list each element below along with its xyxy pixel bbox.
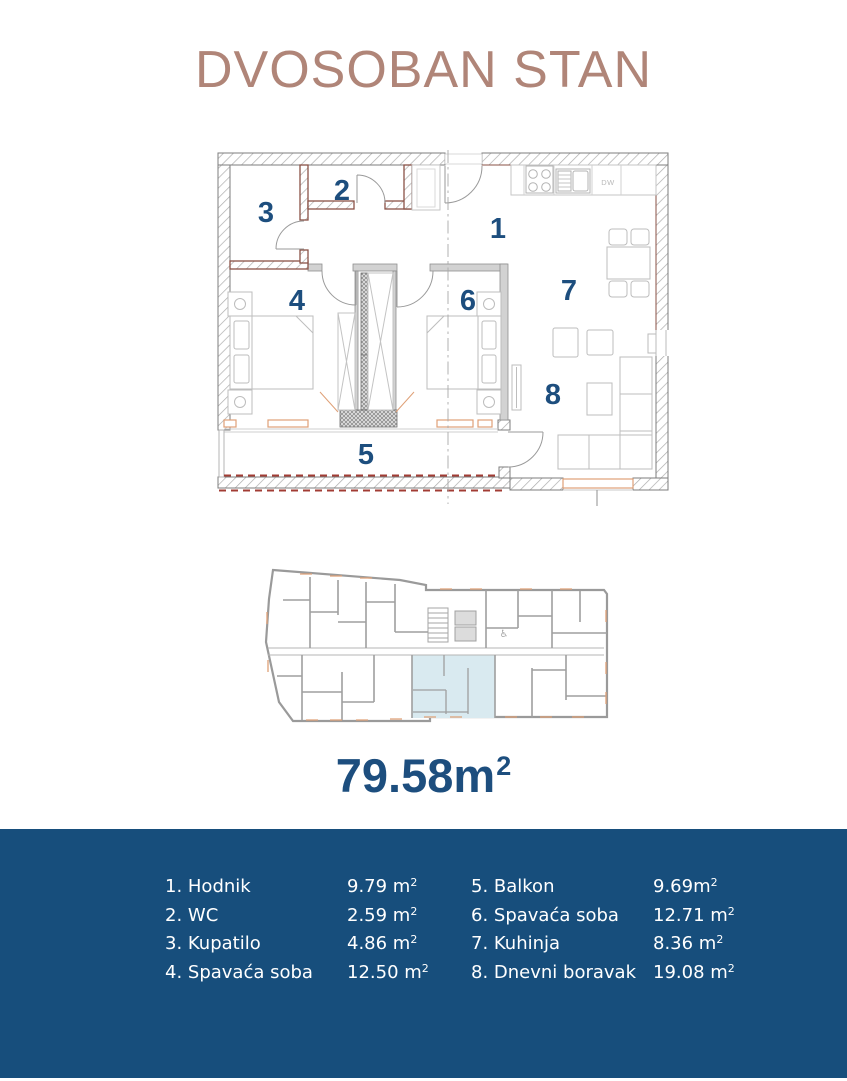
sofa bbox=[558, 435, 652, 469]
legend-room-area: 12.50 m2 bbox=[347, 962, 429, 983]
pillow bbox=[234, 321, 249, 349]
nightstand bbox=[477, 292, 501, 316]
pouf bbox=[553, 328, 578, 357]
room-number-label: 4 bbox=[289, 285, 305, 317]
nightstand bbox=[228, 292, 252, 316]
hall-closet bbox=[412, 165, 440, 210]
dishwasher-label: DW bbox=[601, 178, 615, 187]
room-number-label: 3 bbox=[258, 197, 274, 229]
room-number-label: 7 bbox=[561, 275, 577, 307]
right-wall-window bbox=[648, 330, 669, 356]
legend-room-area: 2.59 m2 bbox=[347, 905, 429, 926]
entrance-opening bbox=[445, 154, 482, 164]
living-room-furniture bbox=[512, 328, 652, 469]
coffee-table bbox=[587, 383, 612, 415]
page-title: DVOSOBAN STAN bbox=[0, 40, 847, 100]
legend-room-area: 9.79 m2 bbox=[347, 876, 429, 897]
room-number-label: 8 bbox=[545, 379, 561, 411]
legend-room-name: 4. Spavaća soba bbox=[165, 962, 347, 983]
highlighted-unit bbox=[412, 655, 495, 718]
total-area-value: 79.58m bbox=[336, 749, 495, 802]
room-number-label: 2 bbox=[334, 175, 350, 207]
wheelchair-icon: ♿ bbox=[500, 629, 509, 640]
legend-room-name: 7. Kuhinja bbox=[471, 933, 653, 954]
total-area-sup: 2 bbox=[496, 751, 511, 781]
nightstand bbox=[477, 390, 501, 414]
pillow bbox=[482, 321, 496, 349]
pillow bbox=[482, 355, 496, 383]
apartment-listing-page: DVOSOBAN STAN bbox=[0, 0, 847, 1081]
legend-room-area: 9.69m2 bbox=[653, 876, 735, 897]
room-number-label: 6 bbox=[460, 285, 476, 317]
dining-set bbox=[607, 229, 650, 297]
legend-room-area: 19.08 m2 bbox=[653, 962, 735, 983]
legend-room-name: 6. Spavaća soba bbox=[471, 905, 653, 926]
main-floor-plan: DW bbox=[215, 148, 675, 506]
stairs-icon bbox=[428, 608, 448, 642]
legend-room-name: 5. Balkon bbox=[471, 876, 653, 897]
sink-icon bbox=[556, 169, 590, 193]
legend-column-left: 1. Hodnik9.79 m22. WC2.59 m23. Kupatilo4… bbox=[165, 872, 429, 987]
legend-room-name: 2. WC bbox=[165, 905, 347, 926]
legend-room-area: 12.71 m2 bbox=[653, 905, 735, 926]
building-overview-plan: ♿ bbox=[260, 555, 615, 735]
pillow bbox=[234, 355, 249, 383]
total-area: 79.58m2 bbox=[0, 748, 847, 803]
legend-room-name: 3. Kupatilo bbox=[165, 933, 347, 954]
legend-room-area: 4.86 m2 bbox=[347, 933, 429, 954]
legend-room-name: 8. Dnevni boravak bbox=[471, 962, 653, 983]
legend-room-area: 8.36 m2 bbox=[653, 933, 735, 954]
pouf bbox=[587, 330, 613, 355]
legend-room-name: 1. Hodnik bbox=[165, 876, 347, 897]
room-number-label: 5 bbox=[358, 439, 374, 471]
legend-column-right: 5. Balkon9.69m26. Spavaća soba12.71 m27.… bbox=[471, 872, 735, 987]
nightstand bbox=[228, 390, 252, 414]
room-number-label: 1 bbox=[490, 213, 506, 245]
